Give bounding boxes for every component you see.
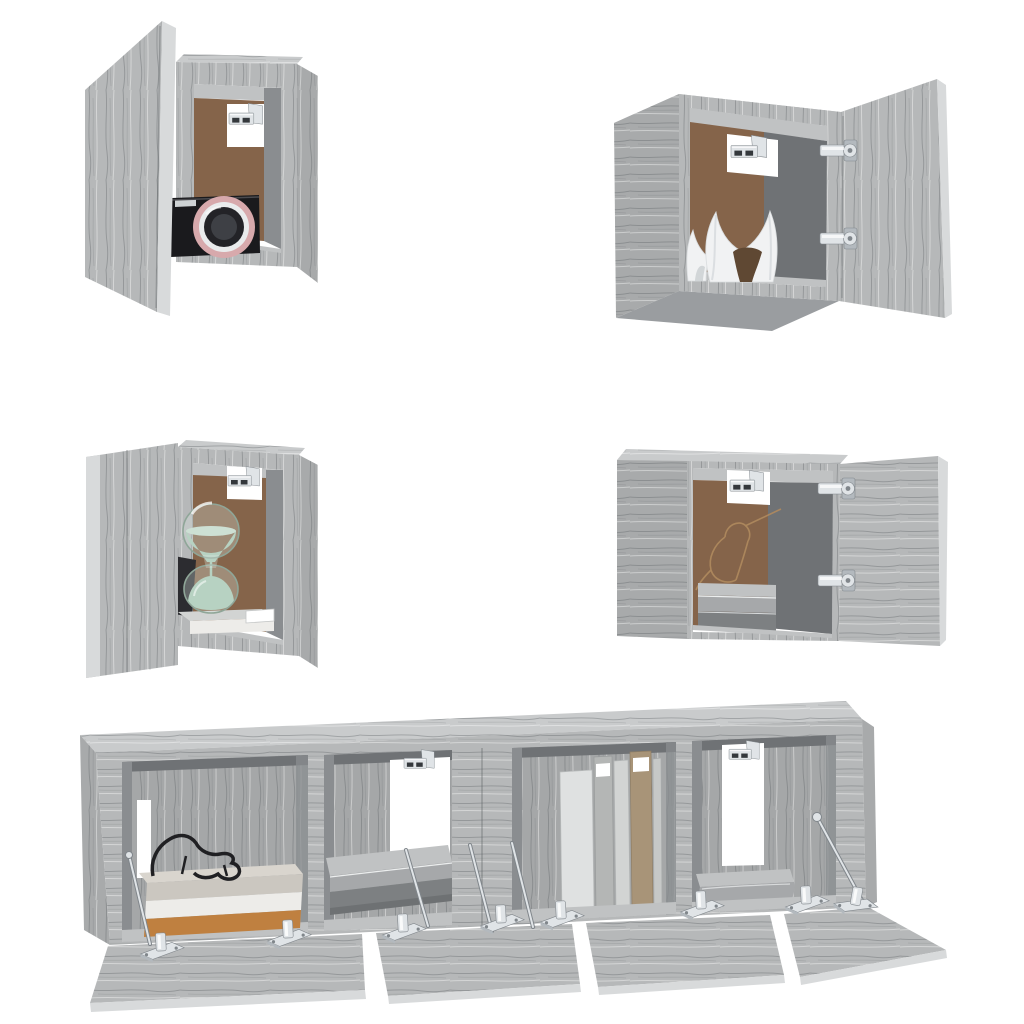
compartment-4 [692, 735, 836, 913]
flap-door-3 [586, 915, 785, 995]
camera [171, 195, 260, 258]
blanket-stack [698, 583, 776, 631]
back-panel-gap [722, 743, 764, 866]
compartment-3 [512, 742, 676, 922]
cabinet-door-open-left [86, 443, 178, 678]
interior-right-recess [768, 482, 833, 634]
compartment-2 [324, 750, 452, 931]
back-panel-gap [390, 757, 450, 860]
book-under-hourglass [178, 609, 274, 634]
cabinet-top-right [614, 79, 952, 331]
interior-right-wall [264, 88, 281, 249]
cabinet-door-open-right [839, 456, 948, 646]
door-edge [86, 455, 100, 678]
cabinet-middle-right [617, 449, 948, 646]
row-of-books [560, 751, 662, 912]
compartment-1 [122, 755, 308, 942]
cabinet-door-open-right [839, 79, 952, 318]
cabinet-middle-left [86, 440, 318, 678]
product-photo-stage: Product photo: 6-piece wall-mounted TV c… [0, 0, 1024, 1024]
flap-door-1 [90, 934, 366, 1012]
hourglass-glass-top [183, 504, 239, 558]
hourglass-glass-bottom [184, 565, 238, 613]
back-panel-gap [137, 800, 151, 878]
bottom-tv-unit [80, 701, 947, 1012]
tv-cabinet-set-photo: Product photo: 6-piece wall-mounted TV c… [0, 0, 1024, 1024]
